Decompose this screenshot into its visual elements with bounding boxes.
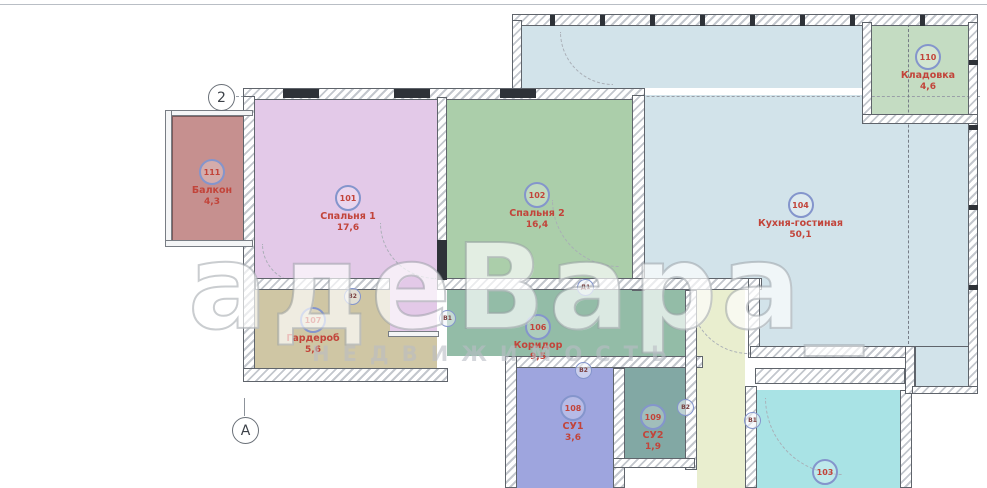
room-name: Кухня-гостиная	[728, 219, 873, 230]
room-number-badge: 106	[525, 314, 551, 340]
room-number-badge: 111	[199, 159, 225, 185]
room-number-badge: 102	[524, 182, 550, 208]
window-tick	[550, 15, 555, 26]
frame-line	[0, 4, 987, 5]
door-marker: В2	[344, 288, 361, 305]
room-area: 4,3	[152, 197, 272, 207]
room-label-bedroom1: 101 Спальня 1 17,6	[288, 185, 408, 233]
window-tick	[800, 15, 805, 26]
wall-segment	[437, 278, 762, 290]
grid-marker-2: 2	[208, 84, 235, 111]
room-name: Балкон	[152, 186, 272, 197]
wall-segment	[388, 331, 439, 337]
wall-segment	[755, 368, 905, 384]
door-marker-label: В2	[579, 367, 588, 374]
window-mark	[283, 89, 319, 98]
window-tick	[969, 205, 978, 210]
grid-marker-a: А	[232, 417, 259, 444]
room-area: 50,1	[728, 230, 873, 240]
room-kitchen-fill-lower	[757, 285, 968, 346]
wall-segment	[750, 346, 908, 358]
wall-pier-mark	[437, 240, 447, 280]
door-marker: В1	[744, 412, 761, 429]
room-number: 111	[204, 168, 221, 177]
room-kitchen-fill-nub	[915, 346, 970, 388]
room-label-balcony: 111 Балкон 4,3	[152, 159, 272, 207]
room-number-badge: 104	[788, 192, 814, 218]
door-marker-label: В1	[748, 417, 757, 424]
room-bedroom1-vestibule-fill	[390, 278, 437, 333]
floor-plan-canvas: 2 А 101 Спальня 1 17,6 102 Спальня 2 16,…	[0, 0, 987, 488]
room-number: 108	[565, 404, 582, 413]
grid-marker-a-label: А	[241, 423, 251, 439]
window-tick	[920, 15, 925, 26]
room-number: 106	[530, 323, 547, 332]
room-number: 102	[529, 191, 546, 200]
wall-segment	[613, 458, 695, 468]
room-area: 9,5	[478, 352, 598, 362]
door-marker-label: В2	[681, 404, 690, 411]
room-number: 107	[305, 316, 322, 325]
balcony-railing	[165, 110, 253, 116]
room-area: 16,4	[477, 220, 597, 230]
room-label-su2: 109 СУ2 1,9	[593, 404, 713, 452]
room-number-badge: 108	[560, 395, 586, 421]
window-tick	[600, 15, 605, 26]
room-number-badge: 101	[335, 185, 361, 211]
room-number: 101	[340, 194, 357, 203]
wall-segment	[632, 95, 645, 291]
room-number: 109	[645, 413, 662, 422]
wall-segment	[745, 386, 757, 488]
room-label-103: 103	[765, 459, 885, 486]
grid-axis-line-a	[244, 398, 245, 416]
room-name: Гардероб	[253, 334, 373, 345]
room-number: 103	[817, 468, 834, 477]
door-marker-label: В1	[443, 315, 452, 322]
door-marker: В2	[575, 362, 592, 379]
room-label-wardrobe: 107 Гардероб 5,6	[253, 307, 373, 355]
wall-segment	[255, 278, 390, 290]
door-marker-label: Д1	[581, 284, 591, 291]
room-area: 4,6	[868, 82, 987, 92]
wall-segment	[243, 368, 448, 382]
window-tick	[969, 125, 978, 130]
wall-segment	[912, 386, 978, 394]
room-name: Коридор	[478, 341, 598, 352]
wall-segment	[512, 14, 978, 26]
room-name: Кладовка	[868, 71, 987, 82]
room-number-badge: 110	[915, 44, 941, 70]
door-marker: Д1	[577, 279, 594, 296]
room-label-bedroom2: 102 Спальня 2 16,4	[477, 182, 597, 230]
window-tick	[750, 15, 755, 26]
room-number-badge: 109	[640, 404, 666, 430]
door-marker: В1	[439, 310, 456, 327]
window-tick	[650, 15, 655, 26]
room-name: СУ2	[593, 431, 713, 442]
room-label-kladovka: 110 Кладовка 4,6	[868, 44, 987, 92]
window-mark	[500, 89, 536, 98]
room-area: 1,9	[593, 442, 713, 452]
wall-segment	[900, 390, 912, 488]
window-tick	[969, 285, 978, 290]
room-number-badge: 107	[300, 307, 326, 333]
window-mark	[394, 89, 430, 98]
window-tick	[850, 15, 855, 26]
room-number-badge: 103	[812, 459, 838, 485]
door-marker-label: В2	[348, 293, 357, 300]
grid-marker-2-label: 2	[217, 90, 226, 106]
room-name: Спальня 1	[288, 212, 408, 223]
wall-segment	[862, 114, 978, 124]
room-area: 5,6	[253, 345, 373, 355]
room-area: 17,6	[288, 223, 408, 233]
door-marker: В2	[677, 399, 694, 416]
room-number: 110	[920, 53, 937, 62]
balcony-railing	[165, 240, 253, 247]
room-label-kitchen: 104 Кухня-гостиная 50,1	[728, 192, 873, 240]
room-name: Спальня 2	[477, 209, 597, 220]
room-number: 104	[792, 201, 809, 210]
window-tick	[700, 15, 705, 26]
room-label-corridor: 106 Коридор 9,5	[478, 314, 598, 362]
